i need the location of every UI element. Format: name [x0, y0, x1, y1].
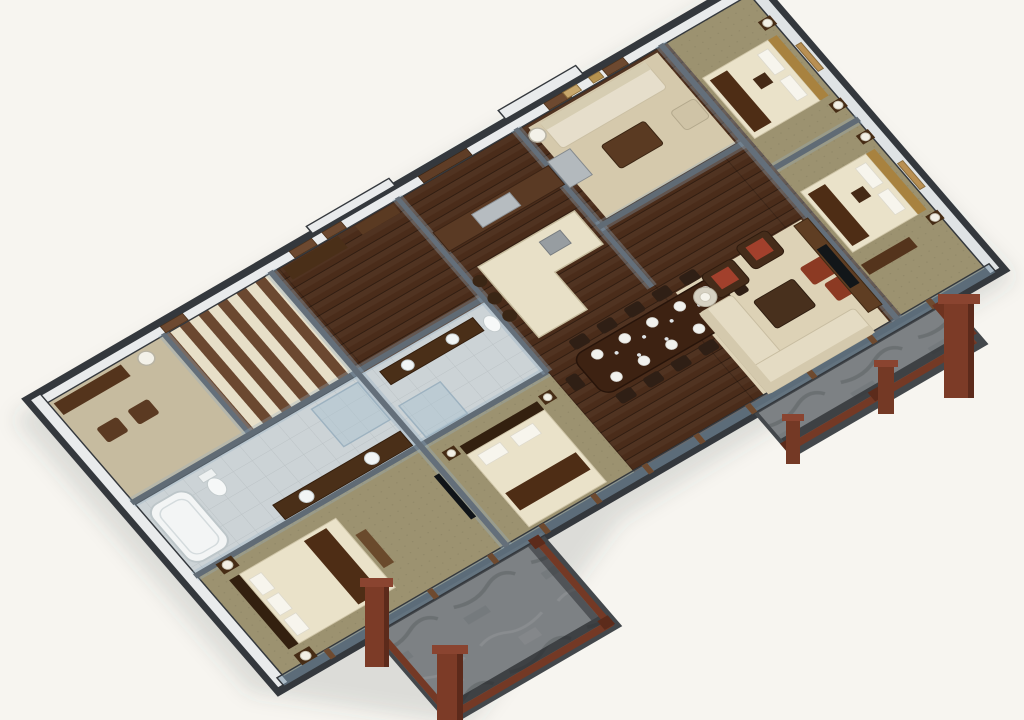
deck-corner-post-shade	[384, 585, 389, 667]
deck-corner-post-shade	[457, 652, 463, 720]
floor-plan-canvas	[0, 0, 1024, 720]
deck-corner-post-cap	[360, 578, 393, 587]
floor-plan-render	[0, 0, 1024, 720]
balcony-mid-post-cap	[874, 360, 898, 367]
balcony-west-post	[786, 420, 800, 464]
balcony-mid-post	[878, 366, 894, 414]
balcony-west-post-cap	[782, 414, 804, 421]
balcony-corner-post-shade	[968, 302, 974, 398]
balcony-corner-post-cap	[938, 294, 980, 304]
floor-plan	[15, 0, 1024, 720]
deck-corner-post-cap	[432, 645, 468, 654]
